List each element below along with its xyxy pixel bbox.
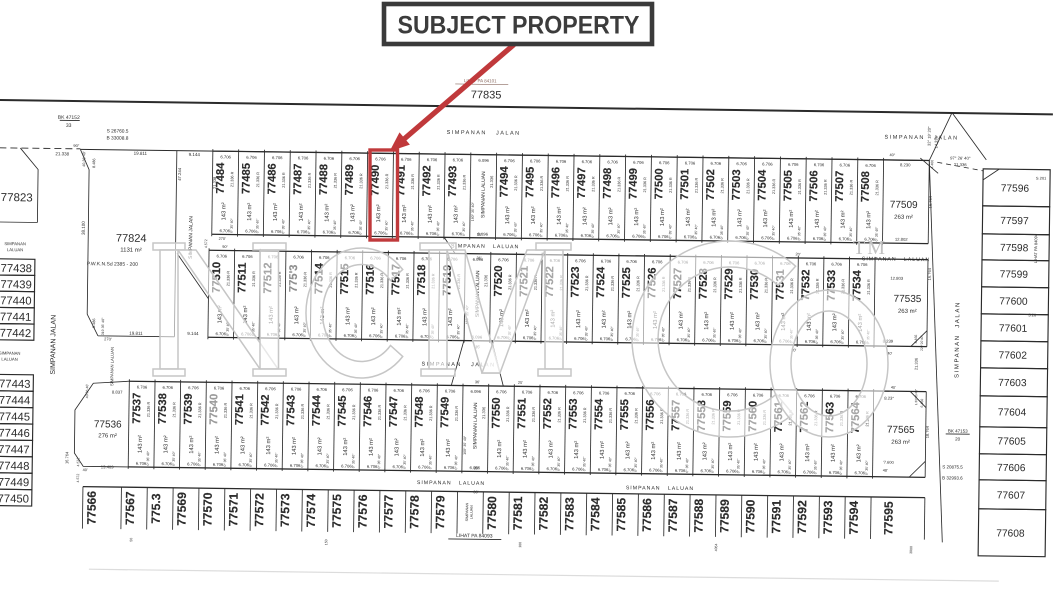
svg-text:6.706: 6.706 — [805, 339, 816, 344]
svg-text:6.706: 6.706 — [393, 388, 404, 393]
svg-text:21.336 R: 21.336 R — [643, 177, 647, 193]
svg-text:6.706: 6.706 — [762, 161, 773, 166]
svg-text:143 m²: 143 m² — [702, 442, 708, 460]
svg-text:77495: 77495 — [524, 167, 536, 198]
svg-text:77595: 77595 — [881, 501, 895, 535]
svg-text:40': 40' — [83, 468, 88, 472]
svg-text:0° 35' 40°: 0° 35' 40° — [384, 220, 388, 235]
svg-text:0° 35' 40°: 0° 35' 40° — [771, 225, 775, 240]
svg-text:77543: 77543 — [285, 395, 297, 426]
svg-text:9.144: 9.144 — [189, 152, 201, 157]
svg-text:6.706: 6.706 — [217, 254, 228, 259]
svg-text:77605: 77605 — [997, 436, 1026, 447]
svg-text:6.706: 6.706 — [323, 230, 334, 235]
svg-text:6.706: 6.706 — [298, 155, 309, 160]
svg-text:77501: 77501 — [679, 169, 691, 200]
svg-text:21.336 R: 21.336 R — [359, 173, 363, 189]
svg-text:40°: 40° — [889, 153, 895, 157]
svg-text:270': 270' — [219, 237, 226, 241]
svg-text:143 m²: 143 m² — [317, 437, 323, 455]
svg-text:19.811: 19.811 — [129, 331, 143, 336]
svg-text:0° 35' 40°: 0° 35' 40° — [617, 223, 621, 238]
svg-text:0° 35' 40°: 0° 35' 40° — [668, 223, 672, 238]
svg-text:143 m²: 143 m² — [730, 312, 736, 330]
svg-text:77541: 77541 — [234, 394, 246, 425]
svg-text:6.706: 6.706 — [498, 257, 509, 262]
svg-text:0° 35' 40°: 0° 35' 40° — [685, 457, 689, 472]
svg-text:LALUAN: LALUAN — [7, 247, 23, 252]
svg-text:8.230: 8.230 — [900, 162, 911, 167]
svg-text:0° 35' 40°: 0° 35' 40° — [720, 224, 724, 239]
svg-text:21.336 R: 21.336 R — [583, 407, 587, 423]
svg-text:6.706: 6.706 — [342, 387, 353, 392]
svg-text:6.706: 6.706 — [625, 391, 636, 396]
svg-text:6.706: 6.706 — [137, 385, 148, 390]
svg-text:SIMPANAN: SIMPANAN — [0, 351, 21, 356]
svg-text:77440: 77440 — [0, 295, 32, 307]
svg-text:77571: 77571 — [226, 492, 240, 526]
svg-text:160° 35' 40°: 160° 35' 40° — [463, 435, 467, 455]
svg-text:0° 35' 40°: 0° 35' 40° — [255, 218, 259, 233]
svg-text:6.706: 6.706 — [290, 463, 301, 468]
svg-text:0° 35' 40°: 0° 35' 40° — [712, 327, 716, 342]
svg-text:77448: 77448 — [0, 460, 29, 472]
svg-text:21.336 R: 21.336 R — [333, 173, 337, 189]
svg-text:6.706: 6.706 — [752, 469, 763, 474]
svg-text:143 m²: 143 m² — [397, 308, 403, 326]
svg-text:77441: 77441 — [0, 311, 31, 323]
svg-text:0° 35' 40°: 0° 35' 40° — [764, 328, 768, 343]
svg-text:143 m²: 143 m² — [343, 438, 349, 456]
svg-text:21.336 R: 21.336 R — [867, 279, 871, 295]
svg-text:143 m²: 143 m² — [189, 436, 195, 454]
svg-text:6.706: 6.706 — [316, 387, 327, 392]
svg-text:21.336 R: 21.336 R — [326, 404, 330, 420]
svg-text:6.706: 6.706 — [452, 231, 463, 236]
svg-text:0° 35' 40°: 0° 35' 40° — [813, 459, 817, 474]
svg-text:S 20875.5: S 20875.5 — [942, 464, 963, 469]
svg-text:160° 35' 40°: 160° 35' 40° — [471, 202, 475, 222]
svg-text:0° 35' 40°: 0° 35' 40° — [172, 451, 176, 466]
svg-text:143 m²: 143 m² — [755, 312, 761, 330]
svg-text:6.706: 6.706 — [453, 157, 464, 162]
svg-text:77575: 77575 — [330, 494, 344, 528]
svg-text:SIMPANAN JALAN: SIMPANAN JALAN — [447, 130, 521, 137]
svg-text:'7.600: '7.600 — [883, 460, 895, 465]
svg-text:77587: 77587 — [666, 498, 680, 532]
svg-text:77824: 77824 — [116, 233, 147, 245]
svg-text:77536: 77536 — [94, 419, 122, 430]
svg-text:21.336 R: 21.336 R — [772, 178, 776, 194]
svg-text:77553: 77553 — [567, 398, 579, 429]
svg-text:77603: 77603 — [998, 378, 1027, 389]
svg-text:TM: TM — [853, 237, 887, 259]
svg-text:6.706: 6.706 — [788, 162, 799, 167]
svg-text:6.706: 6.706 — [633, 160, 644, 165]
svg-text:143 m²: 143 m² — [651, 442, 657, 460]
svg-text:6.706: 6.706 — [503, 232, 514, 237]
svg-text:0° 35' 40°: 0° 35' 40° — [815, 328, 819, 343]
svg-text:77582: 77582 — [536, 496, 550, 530]
svg-text:6.706: 6.706 — [162, 385, 173, 390]
svg-text:77494: 77494 — [498, 166, 510, 198]
svg-text:0° 35' 40°: 0° 35' 40° — [436, 220, 440, 235]
svg-text:47.244: 47.244 — [177, 167, 182, 181]
svg-text:77449: 77449 — [0, 477, 29, 489]
svg-text:21.336 R: 21.336 R — [746, 178, 750, 194]
svg-text:6.706: 6.706 — [395, 333, 406, 338]
svg-text:21.336: 21.336 — [914, 357, 919, 370]
svg-text:6.706: 6.706 — [711, 161, 722, 166]
svg-text:6.706: 6.706 — [547, 466, 558, 471]
svg-text:77590: 77590 — [743, 499, 757, 533]
svg-text:6.706: 6.706 — [649, 468, 660, 473]
svg-text:143 m²: 143 m² — [574, 441, 580, 459]
svg-text:6.706: 6.706 — [702, 392, 713, 397]
svg-text:77529: 77529 — [723, 268, 735, 299]
svg-text:6.706: 6.706 — [297, 229, 308, 234]
svg-text:16.764: 16.764 — [64, 451, 69, 464]
svg-text:20: 20 — [955, 437, 961, 442]
svg-text:143 m²: 143 m² — [840, 210, 846, 228]
svg-text:143 m²: 143 m² — [831, 444, 837, 462]
svg-text:143 m²: 143 m² — [350, 204, 356, 222]
svg-text:143 m²: 143 m² — [583, 207, 589, 225]
svg-text:6.706: 6.706 — [319, 255, 330, 260]
svg-text:77544: 77544 — [311, 394, 323, 426]
svg-text:6.706: 6.706 — [573, 390, 584, 395]
svg-text:48': 48' — [883, 469, 888, 473]
svg-text:9.144: 9.144 — [187, 331, 199, 336]
svg-text:77511: 77511 — [236, 262, 248, 293]
svg-text:0° 35' 40°: 0° 35' 40° — [230, 218, 234, 233]
svg-text:77569: 77569 — [175, 492, 189, 526]
svg-text:21.336 R: 21.336 R — [532, 407, 536, 423]
svg-text:21.336 R: 21.336 R — [198, 402, 202, 418]
svg-text:6.706: 6.706 — [659, 160, 670, 165]
svg-text:77493: 77493 — [447, 166, 459, 197]
svg-text:4.572: 4.572 — [76, 474, 80, 483]
svg-text:143 m²: 143 m² — [325, 204, 331, 222]
svg-text:6.706: 6.706 — [575, 258, 586, 263]
svg-text:0° 35' 40°: 0° 35' 40° — [584, 325, 588, 340]
svg-text:21.336 R: 21.336 R — [224, 402, 228, 418]
svg-text:21.336 R: 21.336 R — [226, 271, 230, 287]
svg-text:B 33008.8: B 33008.8 — [106, 135, 128, 141]
svg-text:143 m²: 143 m² — [371, 307, 377, 325]
svg-text:3000: 3000 — [909, 546, 913, 554]
svg-text:6.706: 6.706 — [161, 461, 172, 466]
svg-text:0° 35' 40°: 0° 35' 40° — [359, 219, 363, 234]
svg-text:77547: 77547 — [388, 396, 400, 427]
svg-text:143 m²: 143 m² — [273, 203, 279, 221]
svg-text:6.706: 6.706 — [675, 468, 686, 473]
svg-text:21.336 R: 21.336 R — [411, 174, 415, 190]
svg-text:77496: 77496 — [550, 167, 562, 198]
svg-text:0° 35' 40°: 0° 35' 40° — [865, 460, 869, 475]
svg-text:143 m²: 143 m² — [420, 439, 426, 457]
svg-text:4.572: 4.572 — [204, 239, 208, 248]
svg-text:8.23°: 8.23° — [884, 396, 894, 401]
svg-text:21.336 R: 21.336 R — [566, 176, 570, 192]
svg-text:77509: 77509 — [890, 200, 918, 211]
svg-text:6.706: 6.706 — [830, 339, 841, 344]
svg-text:143 m²: 143 m² — [686, 208, 692, 226]
svg-text:0° 35' 40°: 0° 35' 40° — [328, 322, 332, 337]
svg-text:6.706: 6.706 — [521, 466, 532, 471]
svg-text:77550: 77550 — [490, 397, 502, 428]
svg-text:143 m²: 143 m² — [548, 440, 554, 458]
svg-text:6.706: 6.706 — [727, 392, 738, 397]
svg-text:775'3: 775'3 — [288, 265, 300, 293]
svg-text:143 m²: 143 m² — [266, 437, 272, 455]
svg-text:6.706: 6.706 — [344, 333, 355, 338]
svg-text:143 m²: 143 m² — [660, 208, 666, 226]
svg-text:6.706: 6.706 — [375, 156, 386, 161]
svg-text:6.706: 6.706 — [831, 262, 842, 267]
svg-text:6.706: 6.706 — [265, 386, 276, 391]
svg-text:0° 35' 40°: 0° 35' 40° — [841, 329, 845, 344]
svg-text:0° 35' 40°: 0° 35' 40° — [661, 326, 665, 341]
svg-text:77502: 77502 — [705, 169, 717, 200]
svg-text:21.336 R: 21.336 R — [429, 405, 433, 421]
svg-text:319 35' 40°: 319 35' 40° — [101, 317, 105, 335]
svg-text:6.706: 6.706 — [830, 394, 841, 399]
svg-text:6.706: 6.706 — [271, 229, 282, 234]
svg-text:143 m²: 143 m² — [292, 437, 298, 455]
svg-text:6.096: 6.096 — [478, 158, 489, 163]
svg-text:0° 35' 40°: 0° 35' 40° — [462, 221, 466, 236]
svg-text:77492: 77492 — [421, 165, 433, 196]
svg-text:4.406: 4.406 — [930, 160, 934, 169]
svg-text:P.W.K.N.Sd 2385 - 200: P.W.K.N.Sd 2385 - 200 — [87, 261, 138, 268]
svg-text:6.706: 6.706 — [701, 468, 712, 473]
svg-text:21.336 R: 21.336 R — [695, 177, 699, 193]
svg-text:77581: 77581 — [511, 496, 525, 530]
svg-text:77601: 77601 — [999, 323, 1028, 334]
svg-text:8.486: 8.486 — [92, 318, 96, 328]
svg-text:77584: 77584 — [588, 497, 602, 531]
svg-text:35': 35' — [477, 233, 482, 237]
svg-text:6.706: 6.706 — [187, 461, 198, 466]
svg-text:6.706: 6.706 — [652, 259, 663, 264]
svg-text:6.706: 6.706 — [349, 156, 360, 161]
svg-text:6.706: 6.706 — [246, 155, 257, 160]
svg-text:6.706: 6.706 — [601, 259, 612, 264]
svg-text:77535: 77535 — [893, 294, 921, 305]
svg-text:21.336 R: 21.336 R — [508, 274, 512, 290]
svg-text:143 m²: 143 m² — [523, 440, 529, 458]
svg-text:143 m²: 143 m² — [369, 438, 375, 456]
svg-text:77549: 77549 — [439, 397, 451, 428]
svg-text:0° 35' 40°: 0° 35' 40° — [762, 458, 766, 473]
svg-text:77505: 77505 — [782, 170, 794, 201]
svg-text:143 m²: 143 m² — [446, 439, 452, 457]
svg-text:143 m²: 143 m² — [805, 444, 811, 462]
svg-text:77503: 77503 — [731, 169, 743, 200]
svg-text:SUBJECT PROPERTY: SUBJECT PROPERTY — [398, 12, 640, 40]
svg-text:143 m²: 143 m² — [832, 313, 838, 331]
svg-text:0° 35' 40°: 0° 35' 40° — [428, 454, 432, 469]
svg-text:6.096: 6.096 — [473, 257, 484, 262]
svg-text:SIMPANAN JALAN: SIMPANAN JALAN — [885, 135, 959, 142]
svg-text:6.706: 6.706 — [324, 156, 335, 161]
svg-text:21.336 R: 21.336 R — [557, 407, 561, 423]
svg-text:143 m²: 143 m² — [677, 442, 683, 460]
svg-text:6.706: 6.706 — [806, 261, 817, 266]
svg-text:BK 47153: BK 47153 — [948, 428, 968, 433]
svg-text:0° 35' 40°: 0° 35' 40° — [403, 454, 407, 469]
svg-text:6.706: 6.706 — [778, 469, 789, 474]
svg-text:77446: 77446 — [0, 428, 30, 440]
svg-text:21.336 R: 21.336 R — [514, 175, 518, 191]
svg-text:77551: 77551 — [516, 398, 528, 429]
svg-text:143 m²: 143 m² — [345, 307, 351, 325]
svg-text:77486: 77486 — [266, 163, 278, 194]
svg-text:143 m²: 143 m² — [247, 203, 253, 221]
svg-text:6.706: 6.706 — [598, 467, 609, 472]
svg-text:270': 270' — [104, 336, 112, 341]
svg-text:6.706: 6.706 — [803, 470, 814, 475]
svg-text:0° 35' 40°: 0° 35' 40° — [197, 451, 201, 466]
svg-text:21.336 R: 21.336 R — [301, 404, 305, 420]
svg-text:77487: 77487 — [292, 164, 304, 195]
svg-text:12.802: 12.802 — [895, 237, 909, 242]
svg-text:77608: 77608 — [996, 528, 1025, 539]
svg-text:143 m²: 143 m² — [505, 206, 511, 224]
svg-text:40.36 40': 40.36 40' — [82, 151, 86, 167]
svg-text:77548: 77548 — [413, 396, 425, 427]
svg-text:33: 33 — [66, 123, 72, 129]
svg-text:77594: 77594 — [847, 501, 861, 535]
svg-text:6.706: 6.706 — [736, 161, 747, 166]
svg-text:6.706: 6.706 — [292, 332, 303, 337]
svg-text:0° 35' 40°: 0° 35' 40° — [659, 457, 663, 472]
svg-text:21.336 R: 21.336 R — [540, 175, 544, 191]
svg-text:6.706: 6.706 — [242, 254, 253, 259]
svg-text:40': 40' — [891, 386, 896, 390]
svg-text:21.336 R: 21.336 R — [282, 172, 286, 188]
svg-text:21.336 R: 21.336 R — [591, 176, 595, 192]
svg-text:8.837: 8.837 — [112, 389, 123, 394]
svg-text:40.36 40': 40.36 40' — [85, 384, 89, 399]
svg-text:143 m²: 143 m² — [634, 208, 640, 226]
svg-text:77576: 77576 — [356, 494, 370, 528]
svg-text:4.572: 4.572 — [76, 458, 80, 467]
svg-text:77566: 77566 — [84, 491, 98, 525]
svg-text:21.336 R: 21.336 R — [585, 275, 589, 291]
svg-text:77508: 77508 — [860, 171, 872, 202]
svg-text:20': 20' — [796, 252, 801, 256]
svg-text:21.336 R: 21.336 R — [875, 180, 879, 196]
svg-text:143 m²: 143 m² — [608, 207, 614, 225]
svg-text:143 m²: 143 m² — [557, 207, 563, 225]
svg-text:0° 35' 40°: 0° 35' 40° — [281, 218, 285, 233]
svg-text:8.466: 8.466 — [914, 335, 918, 344]
svg-text:276 m²: 276 m² — [98, 433, 117, 439]
svg-text:SIMPANAN LALUAN: SIMPANAN LALUAN — [480, 171, 487, 218]
svg-text:0° 35' 40°: 0° 35' 40° — [410, 220, 414, 235]
svg-text:21.336 R: 21.336 R — [739, 277, 743, 293]
svg-text:SIMPANAN JALAN: SIMPANAN JALAN — [50, 315, 58, 375]
svg-text:77552: 77552 — [542, 398, 554, 429]
svg-text:0° 35' 40°: 0° 35' 40° — [326, 453, 330, 468]
svg-text:6.706: 6.706 — [418, 465, 429, 470]
svg-text:6.706: 6.706 — [606, 233, 617, 238]
svg-text:6.706: 6.706 — [315, 463, 326, 468]
svg-text:143 m²: 143 m² — [376, 204, 382, 222]
svg-text:0° 35' 40°: 0° 35' 40° — [513, 221, 517, 236]
svg-text:143 m²: 143 m² — [754, 443, 760, 461]
svg-text:77488: 77488 — [318, 164, 330, 195]
svg-text:77574: 77574 — [304, 493, 318, 527]
svg-text:77500: 77500 — [653, 168, 665, 199]
svg-text:6.706: 6.706 — [369, 333, 380, 338]
svg-text:6.706: 6.706 — [496, 389, 507, 394]
svg-text:77545: 77545 — [336, 395, 348, 426]
svg-text:775.3: 775.3 — [149, 493, 163, 524]
svg-text:21.336 R: 21.336 R — [352, 404, 356, 420]
svg-text:0° 35' 40°: 0° 35' 40° — [405, 323, 409, 338]
svg-text:6.706: 6.706 — [239, 386, 250, 391]
svg-text:0° 35' 40°: 0° 35' 40° — [634, 457, 638, 472]
svg-text:6.706: 6.706 — [813, 236, 824, 241]
svg-text:77573: 77573 — [278, 493, 292, 527]
svg-text:6.706: 6.706 — [401, 157, 412, 162]
svg-text:6.706: 6.706 — [804, 393, 815, 398]
svg-text:6.706: 6.706 — [522, 390, 533, 395]
svg-text:6.706: 6.706 — [753, 338, 764, 343]
svg-text:143 m²: 143 m² — [428, 205, 434, 223]
svg-text:SIMPANAN LALUAN: SIMPANAN LALUAN — [417, 480, 485, 487]
svg-text:1131 m²: 1131 m² — [120, 248, 142, 254]
svg-text:LIHAT PA 84094: LIHAT PA 84094 — [1033, 233, 1038, 263]
svg-text:21.336: 21.336 — [954, 162, 968, 167]
svg-text:0° 35' 40°: 0° 35' 40° — [454, 454, 458, 469]
svg-text:97° 26' 40°: 97° 26' 40° — [950, 155, 971, 160]
svg-text:6.706: 6.706 — [367, 464, 378, 469]
svg-text:6.706: 6.706 — [548, 390, 559, 395]
svg-text:21.336 R: 21.336 R — [230, 171, 234, 187]
svg-text:77600: 77600 — [999, 296, 1028, 307]
svg-text:6.706: 6.706 — [685, 160, 696, 165]
svg-text:6.706: 6.706 — [829, 470, 840, 475]
svg-text:LALUAN: LALUAN — [1, 357, 17, 362]
svg-text:77599: 77599 — [1000, 269, 1029, 280]
svg-text:77570: 77570 — [200, 492, 214, 526]
svg-text:143 m²: 143 m² — [856, 444, 862, 462]
svg-text:0° 35' 40°: 0° 35' 40° — [533, 325, 537, 340]
svg-text:77578: 77578 — [407, 495, 421, 529]
svg-text:143 m²: 143 m² — [497, 440, 503, 458]
svg-text:21.336 R: 21.336 R — [824, 179, 828, 195]
svg-text:6.706: 6.706 — [865, 163, 876, 168]
svg-text:77579: 77579 — [433, 495, 447, 529]
svg-text:21.336 R: 21.336 R — [378, 405, 382, 421]
svg-text:150: 150 — [324, 539, 328, 545]
svg-text:0° 35' 40°: 0° 35' 40° — [687, 327, 691, 342]
svg-text:77523: 77523 — [569, 266, 581, 297]
svg-text:6.706: 6.706 — [426, 231, 437, 236]
svg-text:0° 35' 40°: 0° 35' 40° — [694, 224, 698, 239]
svg-text:143 m²: 143 m² — [163, 435, 169, 453]
svg-text:S 201: S 201 — [1036, 176, 1047, 181]
svg-text:21.336 R: 21.336 R — [790, 278, 794, 294]
svg-text:21.338: 21.338 — [55, 151, 69, 156]
svg-text:21.336 R: 21.336 R — [275, 403, 279, 419]
svg-text:143 m²: 143 m² — [402, 205, 408, 223]
svg-text:77589: 77589 — [717, 499, 731, 533]
